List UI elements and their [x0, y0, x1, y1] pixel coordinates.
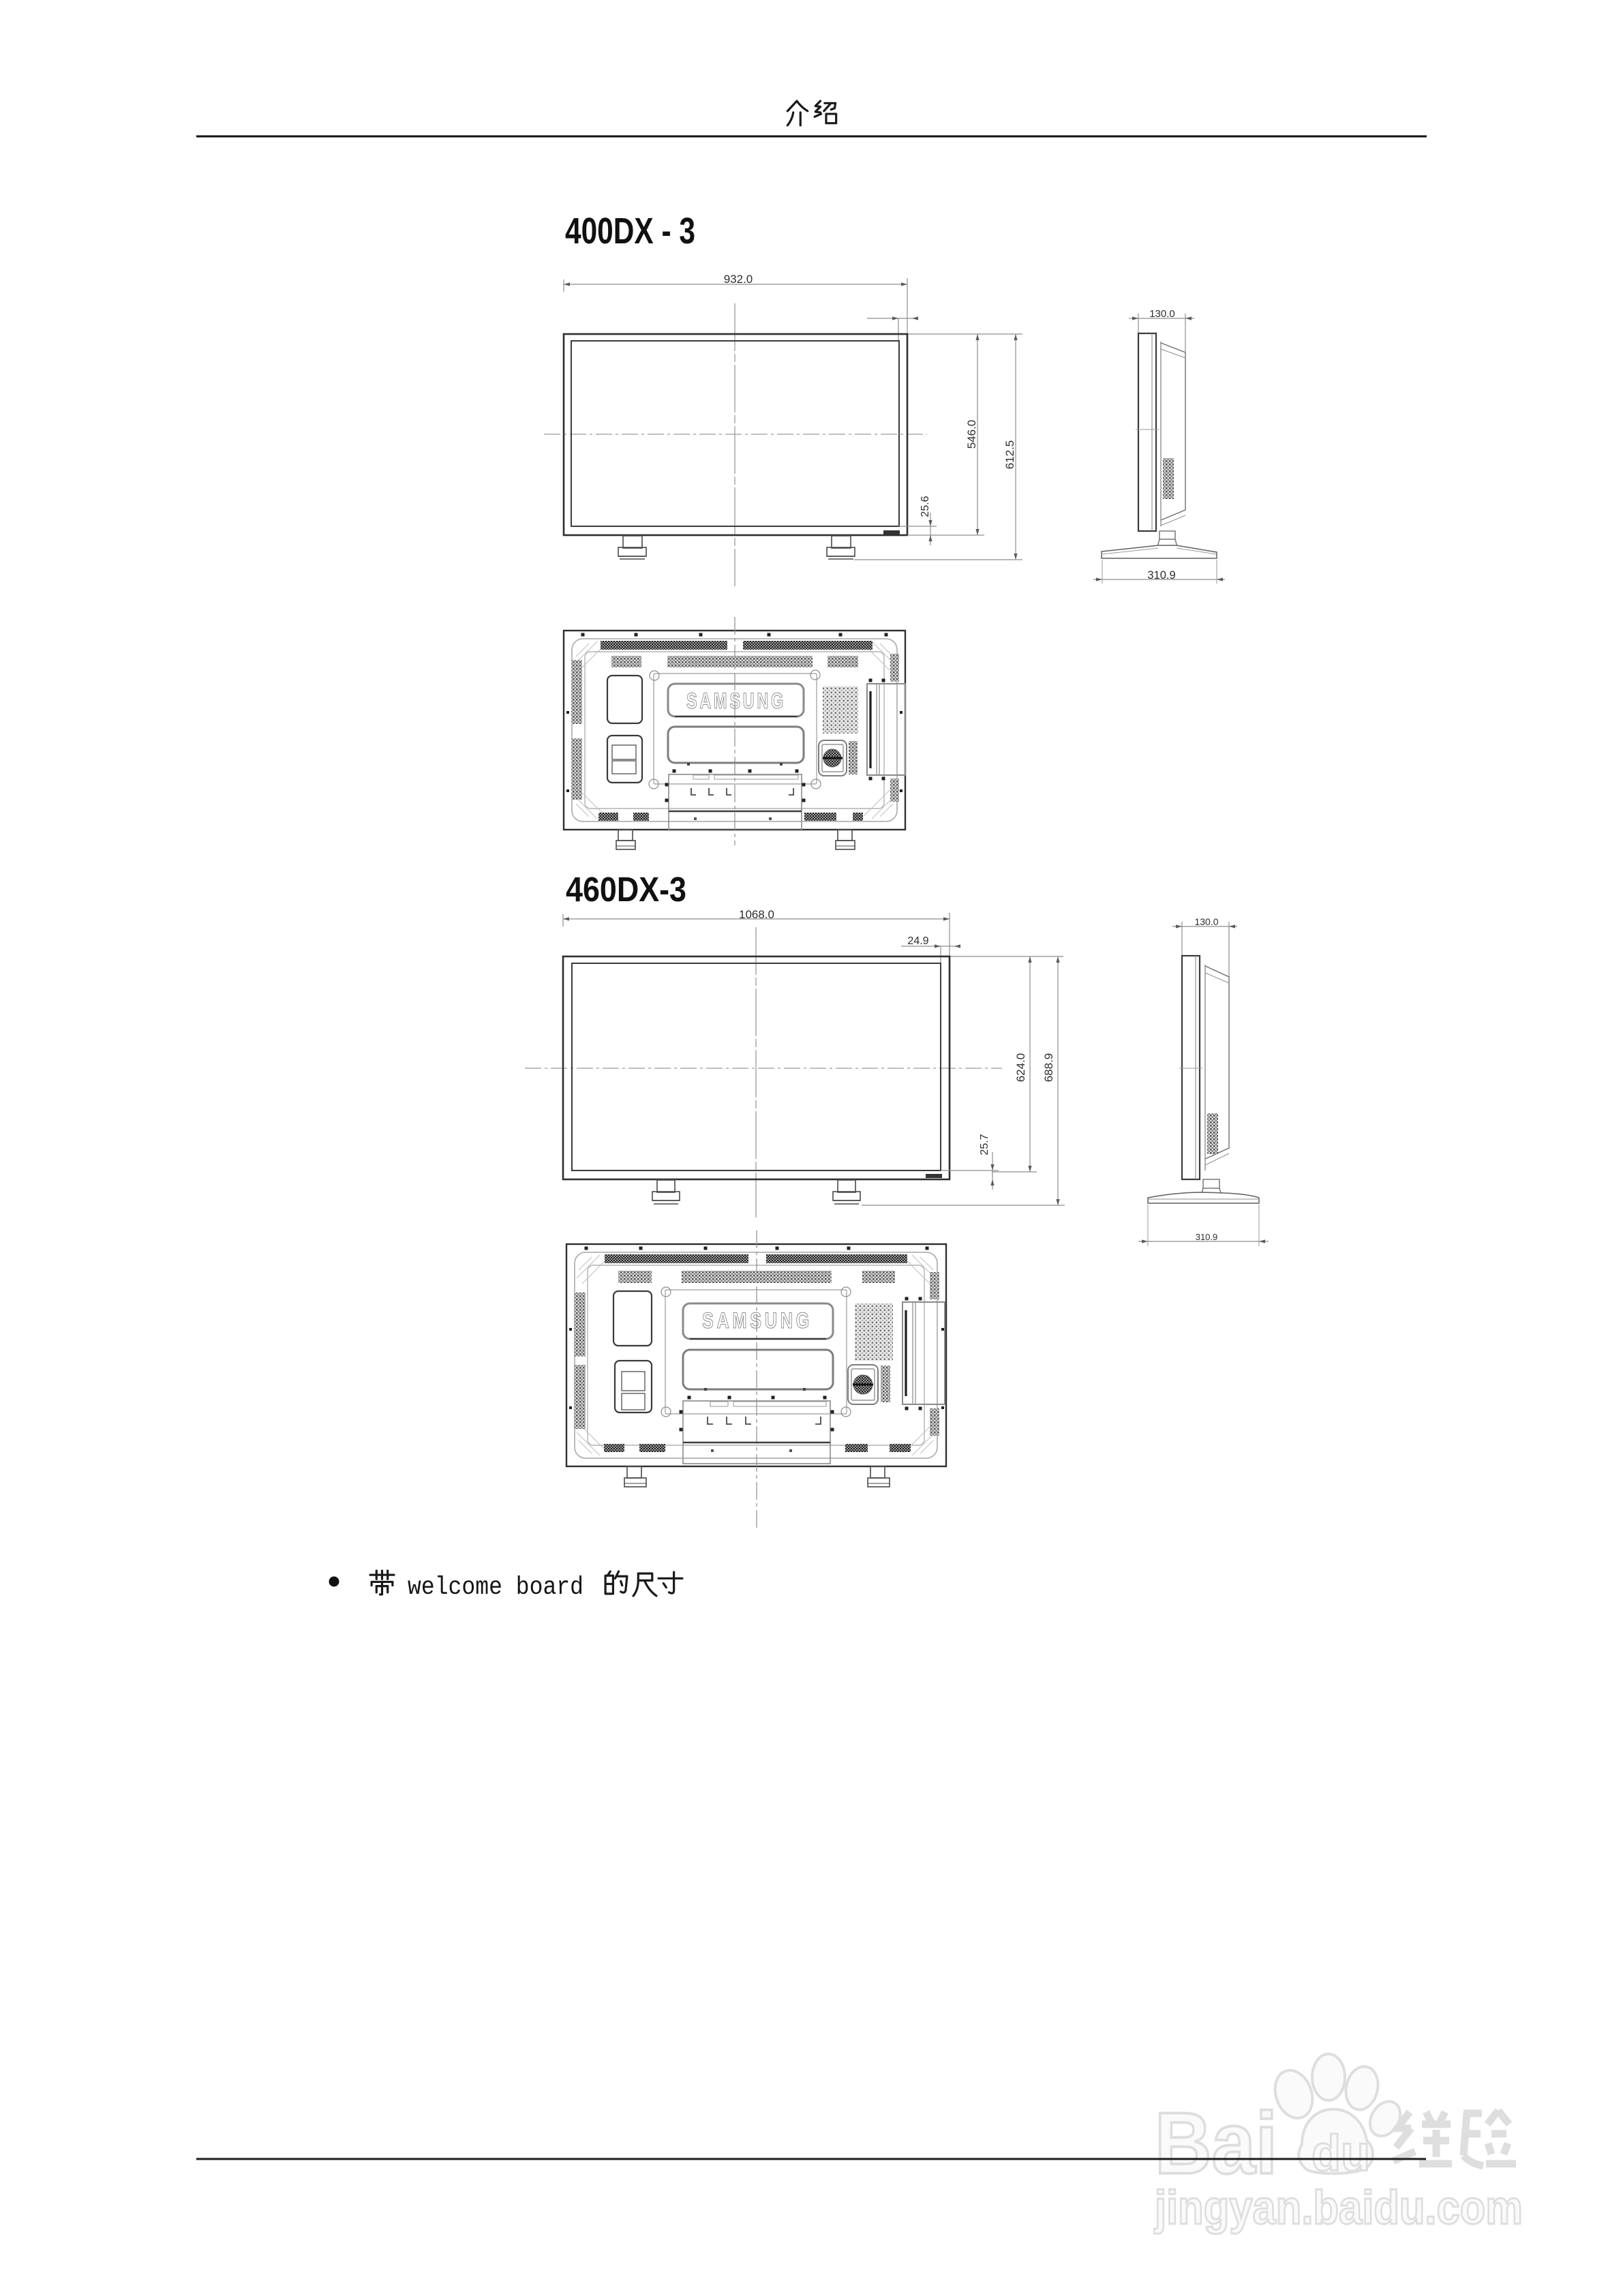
svg-text:546.0: 546.0 — [965, 420, 978, 449]
svg-text:du: du — [1311, 2125, 1370, 2181]
svg-text:SAMSUNG: SAMSUNG — [702, 1308, 813, 1333]
svg-text:jingyan.baidu.com: jingyan.baidu.com — [1153, 2181, 1523, 2234]
svg-text:400DX - 3: 400DX - 3 — [565, 211, 695, 252]
svg-text:130.0: 130.0 — [1194, 916, 1218, 927]
svg-text:Bai: Bai — [1155, 2095, 1277, 2192]
svg-text:25.7: 25.7 — [979, 1134, 990, 1155]
svg-text:welcome board: welcome board — [408, 1573, 583, 1602]
svg-text:612.5: 612.5 — [1003, 440, 1016, 470]
svg-text:932.0: 932.0 — [724, 273, 753, 286]
svg-text:688.9: 688.9 — [1042, 1053, 1055, 1083]
svg-text:460DX-3: 460DX-3 — [566, 870, 686, 909]
svg-text:SAMSUNG: SAMSUNG — [686, 689, 786, 713]
svg-text:25.6: 25.6 — [920, 496, 931, 517]
svg-text:624.0: 624.0 — [1014, 1053, 1027, 1083]
svg-text:24.9: 24.9 — [907, 935, 928, 947]
svg-text:310.9: 310.9 — [1196, 1232, 1218, 1242]
